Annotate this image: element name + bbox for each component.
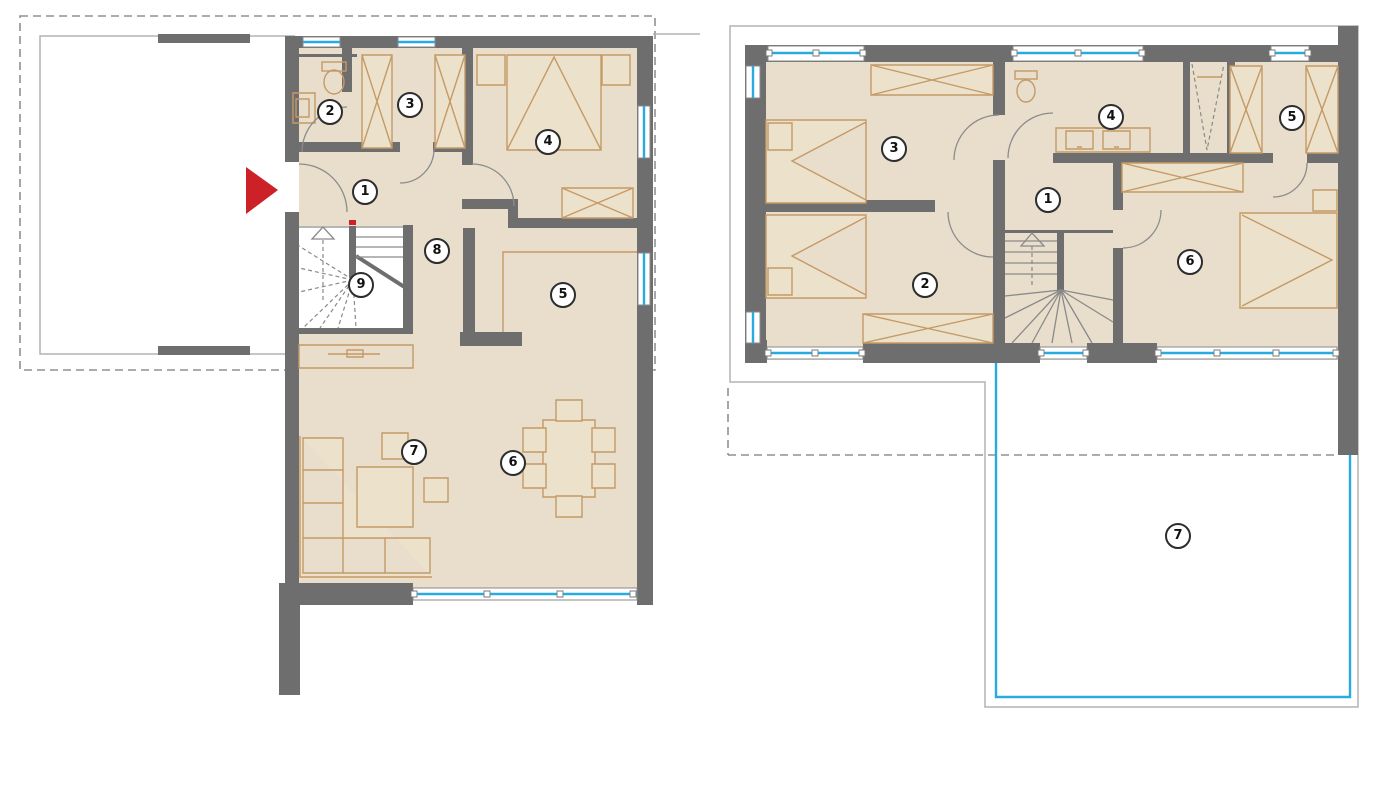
upper-room-label-7: 7 — [1165, 523, 1191, 549]
floorplan-canvas: 1 2 3 4 5 6 7 8 9 1 2 3 4 5 6 7 — [0, 0, 1400, 800]
floorplan-drawing — [0, 0, 1400, 800]
entrance-opening — [283, 162, 299, 212]
ground-floor-plan — [20, 16, 700, 695]
upper-room-label-2: 2 — [912, 272, 938, 298]
ground-room-label-9: 9 — [348, 272, 374, 298]
stair-spine-wall — [1057, 232, 1064, 290]
coffee-table — [357, 467, 413, 527]
upper-room-label-4: 4 — [1098, 104, 1124, 130]
stair-red-mark — [349, 220, 356, 225]
wardrobe — [362, 55, 392, 148]
ground-room-label-1: 1 — [352, 179, 378, 205]
ground-room-label-7: 7 — [401, 439, 427, 465]
double-bed — [1240, 213, 1337, 308]
wardrobe — [871, 65, 993, 95]
dining-table — [543, 420, 595, 497]
stair-spine-wall — [349, 226, 356, 278]
wardrobe — [863, 314, 993, 343]
ground-room-label-3: 3 — [397, 92, 423, 118]
ground-room-label-6: 6 — [500, 450, 526, 476]
ground-room-label-8: 8 — [424, 238, 450, 264]
upper-room-label-6: 6 — [1177, 249, 1203, 275]
upper-room-label-3: 3 — [881, 136, 907, 162]
upper-floor-plan — [728, 26, 1358, 707]
wardrobe — [1122, 163, 1243, 192]
upper-room-label-5: 5 — [1279, 105, 1305, 131]
upper-room-label-1: 1 — [1035, 187, 1061, 213]
nightstand — [1313, 190, 1337, 211]
wardrobe — [562, 188, 633, 218]
entrance-arrow-icon — [246, 167, 278, 214]
ground-room-label-4: 4 — [535, 129, 561, 155]
wardrobe — [435, 55, 465, 148]
ground-room-label-2: 2 — [317, 99, 343, 125]
ground-room-label-5: 5 — [550, 282, 576, 308]
